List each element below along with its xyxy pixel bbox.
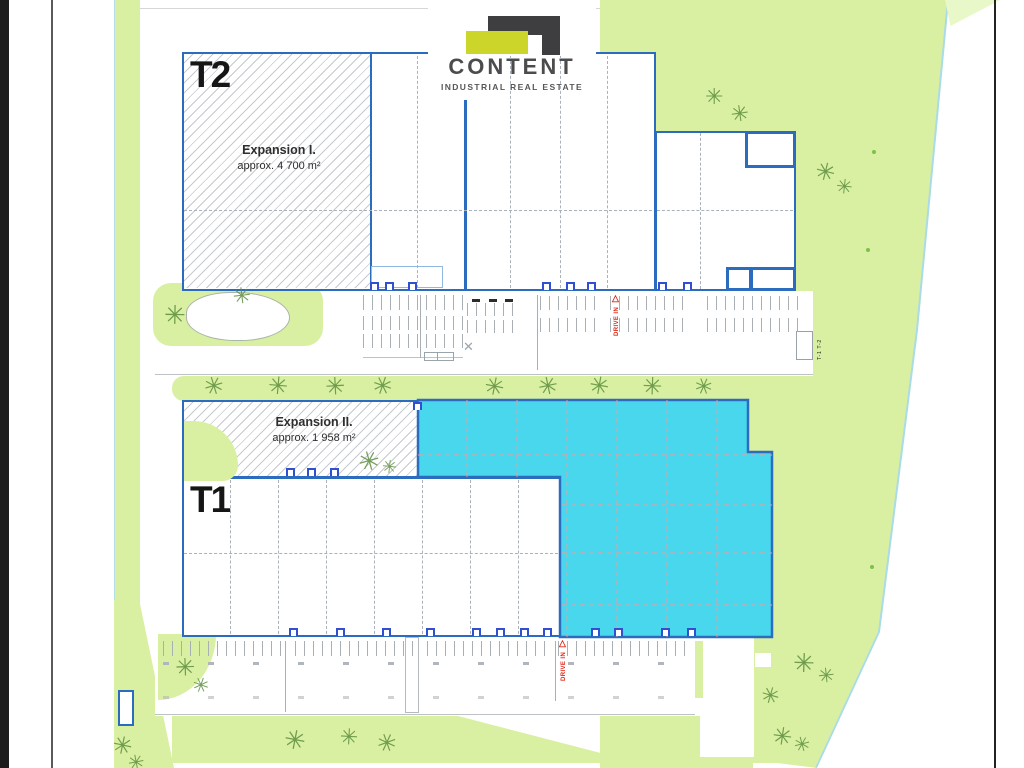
grid-line [374, 480, 375, 634]
page-inner-border-line [51, 0, 53, 768]
dock-door-icon [408, 282, 417, 290]
tree-icon: ✳ [381, 457, 398, 476]
grid-line [657, 210, 793, 211]
shrub-icon [872, 150, 876, 154]
shrub-icon [870, 565, 874, 569]
dock-door-icon [683, 282, 692, 290]
road-line [155, 714, 695, 715]
grid-line [326, 480, 327, 634]
dock-door-icon [496, 628, 505, 636]
t2-interior-zone [371, 266, 443, 288]
shelter-outline [424, 352, 454, 361]
stall-divider [472, 299, 480, 302]
expansion-1-area-value: approx. 4 700 m² [204, 159, 354, 174]
building-t2-label: T2 [190, 56, 229, 93]
t2-annex-top [745, 131, 796, 168]
dock-door-icon [426, 628, 435, 636]
expansion-1-title: Expansion I. [204, 142, 354, 159]
gate-label: T-1 T-2 [817, 339, 823, 360]
tree-icon: ✳ [793, 650, 816, 677]
parking-stalls [610, 296, 688, 310]
logo-accent-icon [466, 31, 528, 54]
parking-marks [163, 662, 688, 665]
green-area-corner-light [945, 0, 1000, 26]
stall-divider [505, 299, 513, 302]
parking-stalls [295, 641, 413, 656]
dock-door-icon [385, 282, 394, 290]
parking-stalls [707, 318, 803, 332]
grid-line [518, 480, 519, 634]
lane-line [285, 641, 286, 712]
parking-stalls [558, 641, 688, 656]
grid-line [278, 480, 279, 634]
pad-right [755, 653, 771, 667]
parking-stalls [363, 334, 463, 348]
page-left-border [0, 0, 9, 768]
parking-stalls [163, 641, 281, 656]
expansion-2-area-value: approx. 1 958 m² [224, 431, 404, 446]
grid-line [470, 480, 471, 634]
dock-door-icon [286, 468, 295, 476]
dock-door-icon [661, 628, 670, 636]
shrub-icon [866, 248, 870, 252]
dock-door-icon [566, 282, 575, 290]
parking-stalls [467, 320, 519, 333]
site-plan: ✕ T-1 T-2 △ DRIVE IN △ DRIVE IN T2 Expan… [0, 0, 1024, 768]
dock-door-icon [289, 628, 298, 636]
tree-icon: ✳ [164, 302, 186, 328]
brand-tagline: INDUSTRIAL REAL ESTATE [428, 82, 596, 92]
parking-stalls [540, 318, 598, 332]
grid-line [700, 133, 701, 289]
lane-line [537, 295, 538, 370]
stall-divider [489, 299, 497, 302]
lane-line [555, 641, 556, 701]
dock-door-icon [543, 628, 552, 636]
dock-door-icon [472, 628, 481, 636]
grid-line [417, 56, 418, 288]
dock-door-icon [413, 402, 422, 410]
parking-stalls [467, 303, 519, 316]
parking-stalls [707, 296, 803, 310]
expansion-2-text: Expansion II. approx. 1 958 m² [224, 414, 404, 446]
dock-door-icon [591, 628, 600, 636]
dock-door-icon [370, 282, 379, 290]
company-logo: CONTENT INDUSTRIAL REAL ESTATE [428, 6, 596, 100]
grid-line [230, 480, 231, 634]
grid-line [184, 210, 652, 211]
grid-line [422, 480, 423, 634]
expansion-1-text: Expansion I. approx. 4 700 m² [204, 142, 354, 174]
parking-stalls [610, 318, 688, 332]
parking-stalls [427, 641, 545, 656]
t2-annex-bottom-1 [726, 267, 752, 291]
page-right-border [994, 0, 996, 768]
logo-building-icon [542, 16, 560, 55]
dock-door-icon [382, 628, 391, 636]
road-right [700, 637, 754, 757]
dock-door-icon [614, 628, 623, 636]
expansion-2-title: Expansion II. [224, 414, 404, 431]
green-strip-small [695, 641, 703, 698]
parking-marks [163, 696, 688, 699]
road-line [155, 374, 813, 375]
dock-door-icon [336, 628, 345, 636]
lane-line [420, 295, 421, 358]
gatehouse-left [118, 690, 134, 726]
dock-door-icon [658, 282, 667, 290]
tree-icon: ✳ [267, 374, 289, 400]
parking-stalls [363, 316, 463, 330]
tree-icon: ✳ [587, 373, 611, 400]
tree-icon: ✳ [705, 86, 723, 108]
dock-door-icon [687, 628, 696, 636]
parking-stalls [363, 295, 463, 310]
dock-door-icon [542, 282, 551, 290]
gatehouse [796, 331, 813, 360]
brand-name: CONTENT [428, 54, 596, 80]
grid-line [184, 553, 558, 554]
grid-line [607, 56, 608, 288]
dock-door-icon [587, 282, 596, 290]
drive-in-label-bottom: DRIVE IN [561, 652, 567, 681]
dock-door-icon [330, 468, 339, 476]
building-t1-label: T1 [190, 481, 229, 518]
grid-line [560, 56, 561, 288]
parking-stalls [540, 296, 598, 310]
dock-door-icon [520, 628, 529, 636]
crossed-stall-mark: ✕ [463, 339, 474, 355]
t2-annex-bottom-2 [750, 267, 796, 291]
grid-line [510, 56, 511, 288]
dock-door-icon [307, 468, 316, 476]
